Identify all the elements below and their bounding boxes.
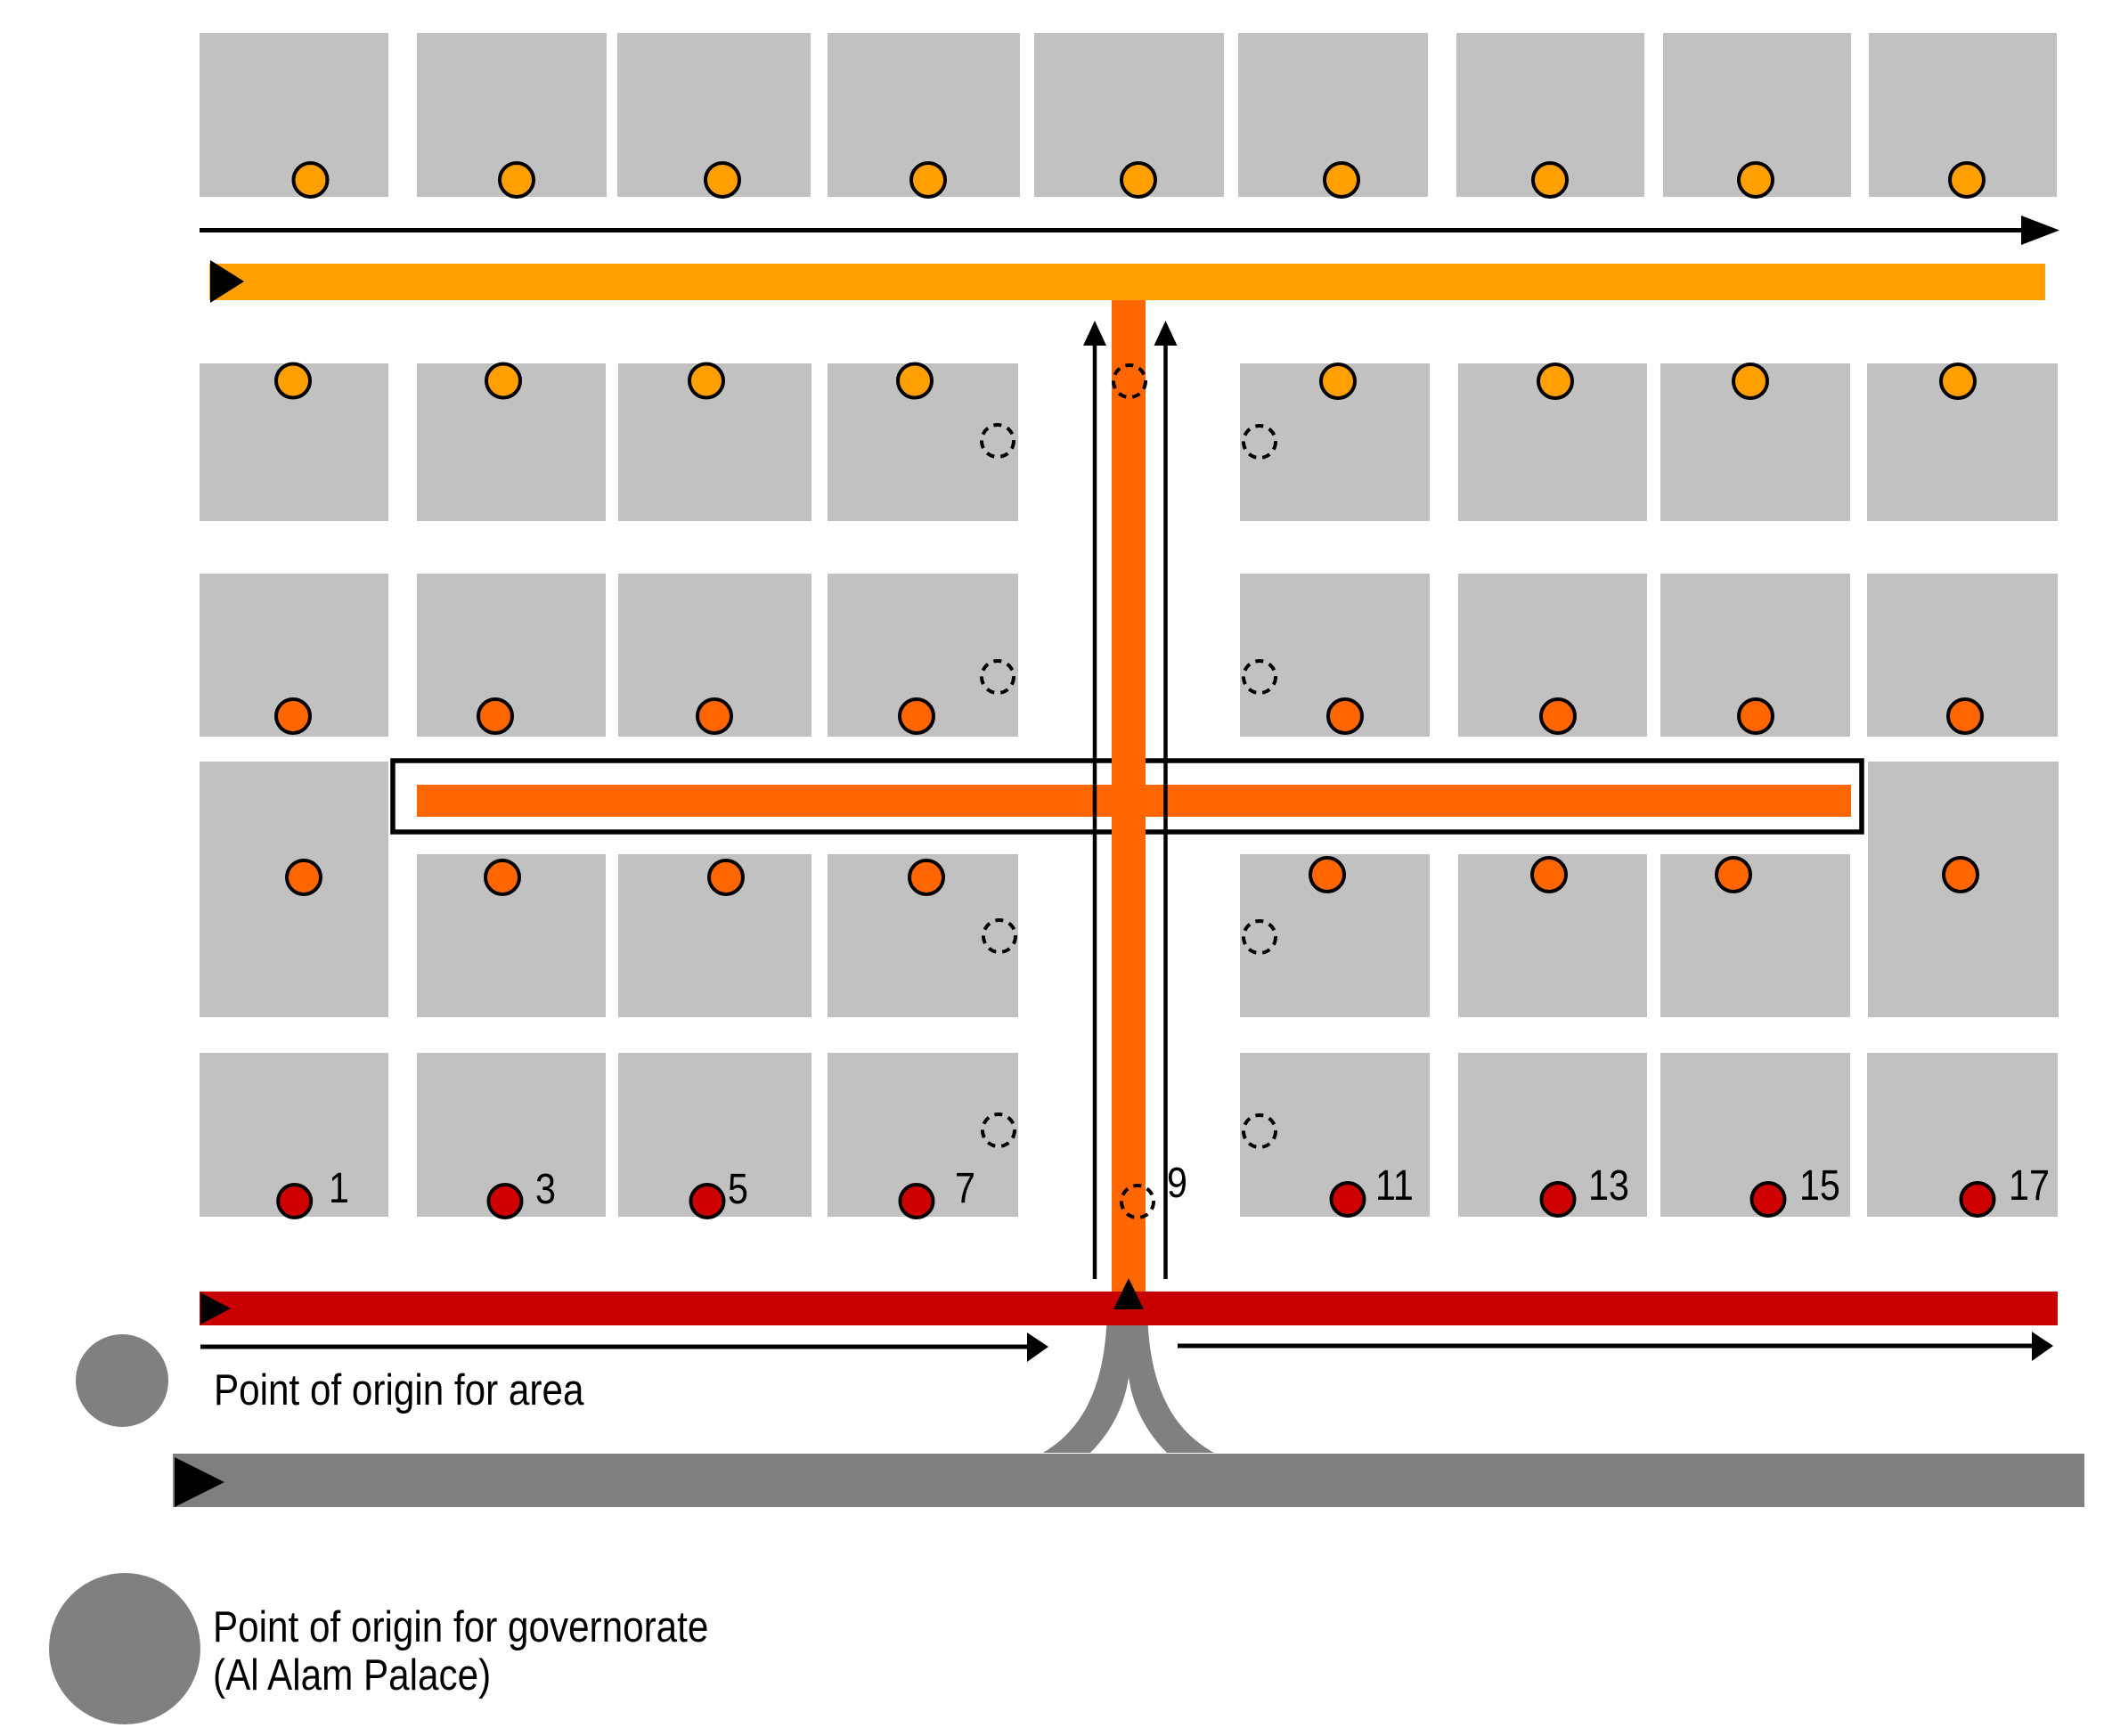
svg-text:15: 15 bbox=[1799, 1161, 1840, 1210]
svg-text:9: 9 bbox=[1167, 1159, 1187, 1207]
svg-text:17: 17 bbox=[2009, 1161, 2050, 1210]
svg-text:7: 7 bbox=[955, 1164, 975, 1212]
svg-text:5: 5 bbox=[728, 1165, 748, 1213]
svg-text:13: 13 bbox=[1588, 1161, 1629, 1210]
svg-text:11: 11 bbox=[1375, 1161, 1414, 1210]
svg-text:3: 3 bbox=[535, 1165, 556, 1213]
svg-text:Point of origin for governorat: Point of origin for governorate bbox=[213, 1602, 708, 1651]
svg-text:(Al Alam Palace): (Al Alam Palace) bbox=[213, 1650, 491, 1699]
svg-text:Point of origin for area: Point of origin for area bbox=[214, 1365, 584, 1414]
svg-text:1: 1 bbox=[329, 1164, 349, 1212]
